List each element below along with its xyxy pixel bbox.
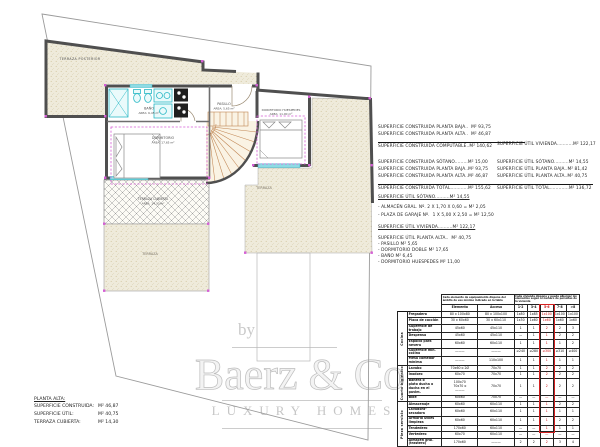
table-cell: 45x60 bbox=[442, 324, 478, 333]
label-pasillo-area: AREA: 5,65 m² bbox=[214, 106, 235, 110]
table-cell: 1 bbox=[553, 357, 566, 366]
table-cell: 1 bbox=[540, 408, 553, 417]
table-cell: 60x60 bbox=[442, 417, 478, 426]
table-cell: 45x110 bbox=[478, 324, 514, 333]
table-cell: 1 bbox=[527, 417, 540, 426]
divider bbox=[497, 184, 593, 186]
table-cell: 1 bbox=[514, 417, 527, 426]
summary-value: M² 14,30 bbox=[98, 421, 118, 429]
annex-outline bbox=[257, 253, 310, 361]
label-bano: BAÑO bbox=[144, 106, 154, 111]
table-cell: 1 bbox=[566, 408, 579, 417]
table-cell: 2 bbox=[527, 438, 540, 447]
table-cell: 2 bbox=[540, 438, 553, 447]
lower-terrace-area bbox=[104, 224, 209, 291]
table-group-label: Cuarto higiénico bbox=[398, 365, 408, 401]
table-cell: ——— bbox=[442, 357, 478, 366]
table-cell: Mesa comedor mínima bbox=[408, 357, 442, 366]
table-cell: 1 bbox=[514, 324, 527, 333]
table-col-header: 7-8 bbox=[553, 305, 566, 312]
area-block-util-total: SUPERFICIE ÚTIL SÓTANO..........M² 14,55… bbox=[497, 161, 593, 194]
label-huespedes-area: AREA: 11,00 m² bbox=[270, 112, 293, 116]
label-bano-area: AREA: 6,45 m² bbox=[139, 111, 160, 115]
table-cell: ≥300 bbox=[540, 348, 553, 357]
summary-row: TERRAZA CUBIERTA: M² 14,30 bbox=[34, 421, 134, 429]
table-cell: 3 bbox=[566, 324, 579, 333]
table-note-right: Cada vivienda dispone y puede albergar l… bbox=[514, 295, 579, 305]
label-dormitorio-area: AREA: 17,65 m² bbox=[152, 140, 175, 144]
area-block-util-sotano: SUPERFICIE ÚTIL SÓTANO..........M² 14,55… bbox=[378, 196, 494, 221]
table-cell: 1 bbox=[553, 408, 566, 417]
area-line: SUPERFICIE ÚTIL VIVIENDA...........M² 12… bbox=[497, 143, 596, 150]
table-ghost-cell bbox=[398, 305, 442, 312]
table-col-header: Acceso bbox=[478, 305, 514, 312]
table-cell: 2 bbox=[566, 378, 579, 395]
planta-alta-summary: PLANTA ALTA: SUPERFICIE CONSTRUIDA: M² 4… bbox=[34, 398, 134, 429]
floorplan-sheet: by Baerz & Co LUXURY HOMES bbox=[0, 0, 600, 447]
table-cell: 60x60 bbox=[442, 408, 478, 417]
table-cell: ——— bbox=[442, 348, 478, 357]
table-cell: 2 bbox=[566, 339, 579, 348]
area-line: SUPERFICIE ÚTIL PLANTA ALTA..M² 40,75 bbox=[497, 175, 593, 182]
area-line: - PLAZA DE GARAJE Nº. 1 X 5,00 X 2,50 = … bbox=[378, 214, 494, 222]
table-cell: Espacio para nevera bbox=[408, 339, 442, 348]
table-cell: 110x100 bbox=[478, 357, 514, 366]
table-cell: ≥280 bbox=[527, 348, 540, 357]
table-ghost-cell bbox=[398, 295, 442, 305]
label-terraza-cubierta: TERRAZA CUBIERTA bbox=[137, 197, 169, 201]
table-col-header: 3-4 bbox=[527, 305, 540, 312]
table-cell: 60x110 bbox=[478, 339, 514, 348]
table-note-left: Cada elemento de equipamiento dispone de… bbox=[442, 295, 514, 305]
table-group-label: Pieza servicio bbox=[398, 402, 408, 447]
table-cell: 1 bbox=[527, 324, 540, 333]
area-title: SUPERFICIE ÚTIL VIVIENDA..........M² 122… bbox=[378, 226, 475, 233]
area-block-util-vivienda-line: SUPERFICIE ÚTIL VIVIENDA...........M² 12… bbox=[497, 143, 596, 150]
area-line: SUPERFICIE CONSTRUIDA PLANTA ALTA.. M² 4… bbox=[378, 133, 525, 140]
table-cell: 1 bbox=[527, 408, 540, 417]
table-cell: 2 bbox=[514, 438, 527, 447]
table-cell: 1 bbox=[514, 339, 527, 348]
label-dormitorio: DORMITORIO bbox=[152, 136, 175, 140]
equipment-requirements-table: Cada elemento de equipamiento dispone de… bbox=[397, 294, 580, 447]
table-cell: Superficie mín. cocina bbox=[408, 348, 442, 357]
label-terraza-cubierta-area: AREA: 14,30 m² bbox=[142, 201, 165, 205]
table-cell: 1 bbox=[527, 378, 540, 395]
table-cell: 1 bbox=[527, 357, 540, 366]
table-cell: 1 bbox=[514, 408, 527, 417]
table-cell: Almacén gral. (trastero) bbox=[408, 438, 442, 447]
table-cell: ≥240 bbox=[514, 348, 527, 357]
table-cell: 170x60 bbox=[442, 438, 478, 447]
table-cell: ≥310 bbox=[553, 348, 566, 357]
label-terraza-lower: TERRAZA bbox=[141, 252, 158, 256]
area-block-util-vivienda: SUPERFICIE ÚTIL VIVIENDA..........M² 122… bbox=[378, 226, 475, 267]
table-cell: 60x110 bbox=[478, 408, 514, 417]
table-cell: ——— bbox=[478, 438, 514, 447]
summary-label: TERRAZA CUBIERTA: bbox=[34, 421, 98, 429]
table-cell: ——— bbox=[478, 348, 514, 357]
table-cell: 1 bbox=[514, 378, 527, 395]
table-cell: 2 bbox=[540, 378, 553, 395]
table-cell: 2 bbox=[553, 378, 566, 395]
area-title: SUPERFICIE ÚTIL SÓTANO..........M² 14,55 bbox=[378, 196, 494, 204]
table-cell: 60x110 bbox=[478, 417, 514, 426]
label-terraza-posterior: TERRAZA POSTERIOR bbox=[59, 57, 101, 61]
table-cell: Armario útiles limpieza bbox=[408, 417, 442, 426]
table-col-header: 1-2 bbox=[514, 305, 527, 312]
table-cell: 1 bbox=[540, 417, 553, 426]
table-col-header-highlight: 5-6 bbox=[540, 305, 553, 312]
table-cell: 70x70 bbox=[478, 378, 514, 395]
area-line: - DORMITORIO HUESPEDES M² 11,00 bbox=[378, 261, 475, 267]
table-cell: 60x60 bbox=[442, 339, 478, 348]
area-line: SUPERFICIE ÚTIL TOTAL.............M² 136… bbox=[497, 187, 593, 194]
table-cell: 1 bbox=[566, 357, 579, 366]
table-cell: 2 bbox=[553, 324, 566, 333]
table-cell: 1 bbox=[540, 339, 553, 348]
table-cell: 1 bbox=[540, 357, 553, 366]
table-cell: 2 bbox=[553, 417, 566, 426]
table-cell: 100x70 70x70 o ——— bbox=[442, 378, 478, 395]
label-terraza: TERRAZA bbox=[255, 186, 272, 190]
table-cell: ≥400 bbox=[566, 348, 579, 357]
table-cell: 2 bbox=[566, 417, 579, 426]
table-cell: 1 bbox=[553, 339, 566, 348]
table-cell: Lavadora-secadora bbox=[408, 408, 442, 417]
bed-guest bbox=[260, 120, 302, 158]
table-col-header: >8 bbox=[566, 305, 579, 312]
table-cell: 2 bbox=[540, 324, 553, 333]
table-cell: 1 bbox=[527, 339, 540, 348]
table-cell: Superficie de trabajo bbox=[408, 324, 442, 333]
table-cell: 4 bbox=[566, 438, 579, 447]
table-group-label: Cocina bbox=[398, 312, 408, 366]
table-cell: 1 bbox=[514, 357, 527, 366]
table-cell: Bañera o plato ducha o ducha en el pavim… bbox=[408, 378, 442, 395]
table-col-header: Elemento bbox=[442, 305, 478, 312]
table-cell: 3 bbox=[553, 438, 566, 447]
